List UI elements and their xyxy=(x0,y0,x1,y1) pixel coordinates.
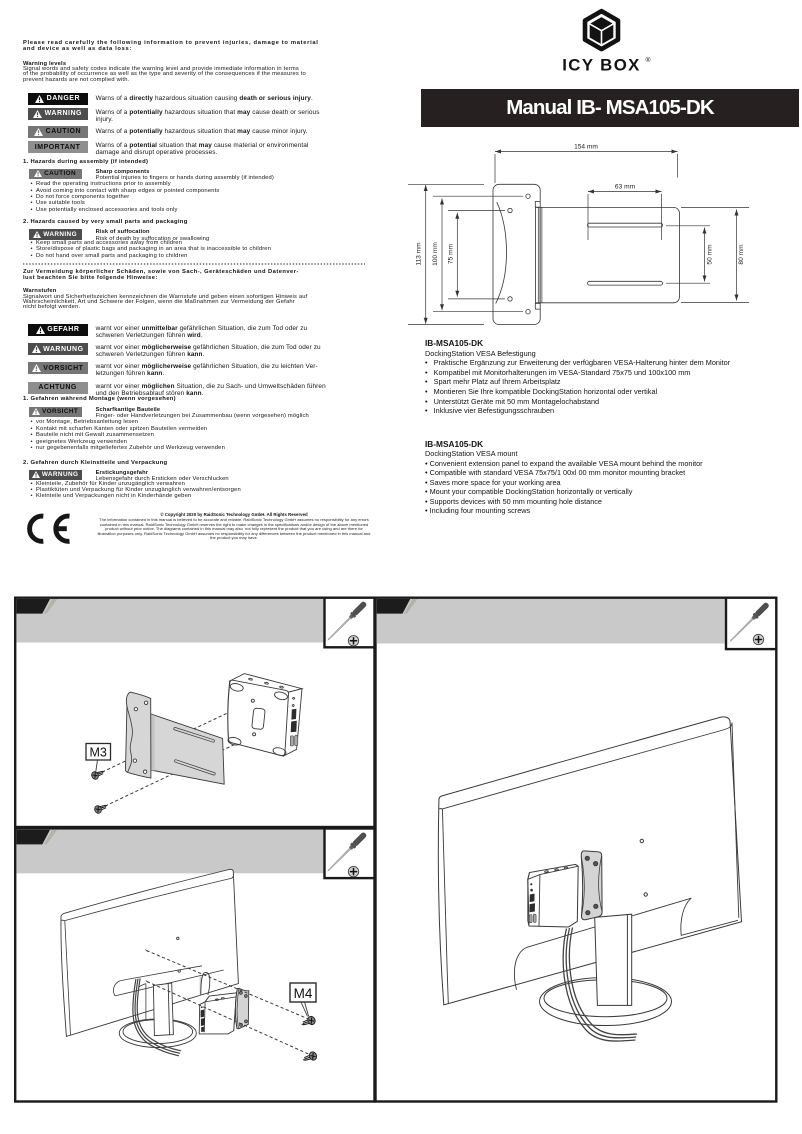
svg-text:100 mm: 100 mm xyxy=(432,242,439,266)
svg-text:ICY BOX: ICY BOX xyxy=(562,56,641,75)
svg-text:63 mm: 63 mm xyxy=(615,184,636,191)
svg-text:113 mm: 113 mm xyxy=(416,242,423,266)
svg-text:®: ® xyxy=(646,56,651,64)
svg-text:80 mm: 80 mm xyxy=(738,244,745,265)
svg-text:M3: M3 xyxy=(90,746,107,760)
svg-text:75 mm: 75 mm xyxy=(448,243,455,264)
svg-text:50 mm: 50 mm xyxy=(707,244,714,265)
svg-text:M4: M4 xyxy=(294,986,313,1001)
svg-text:154 mm: 154 mm xyxy=(574,144,598,151)
